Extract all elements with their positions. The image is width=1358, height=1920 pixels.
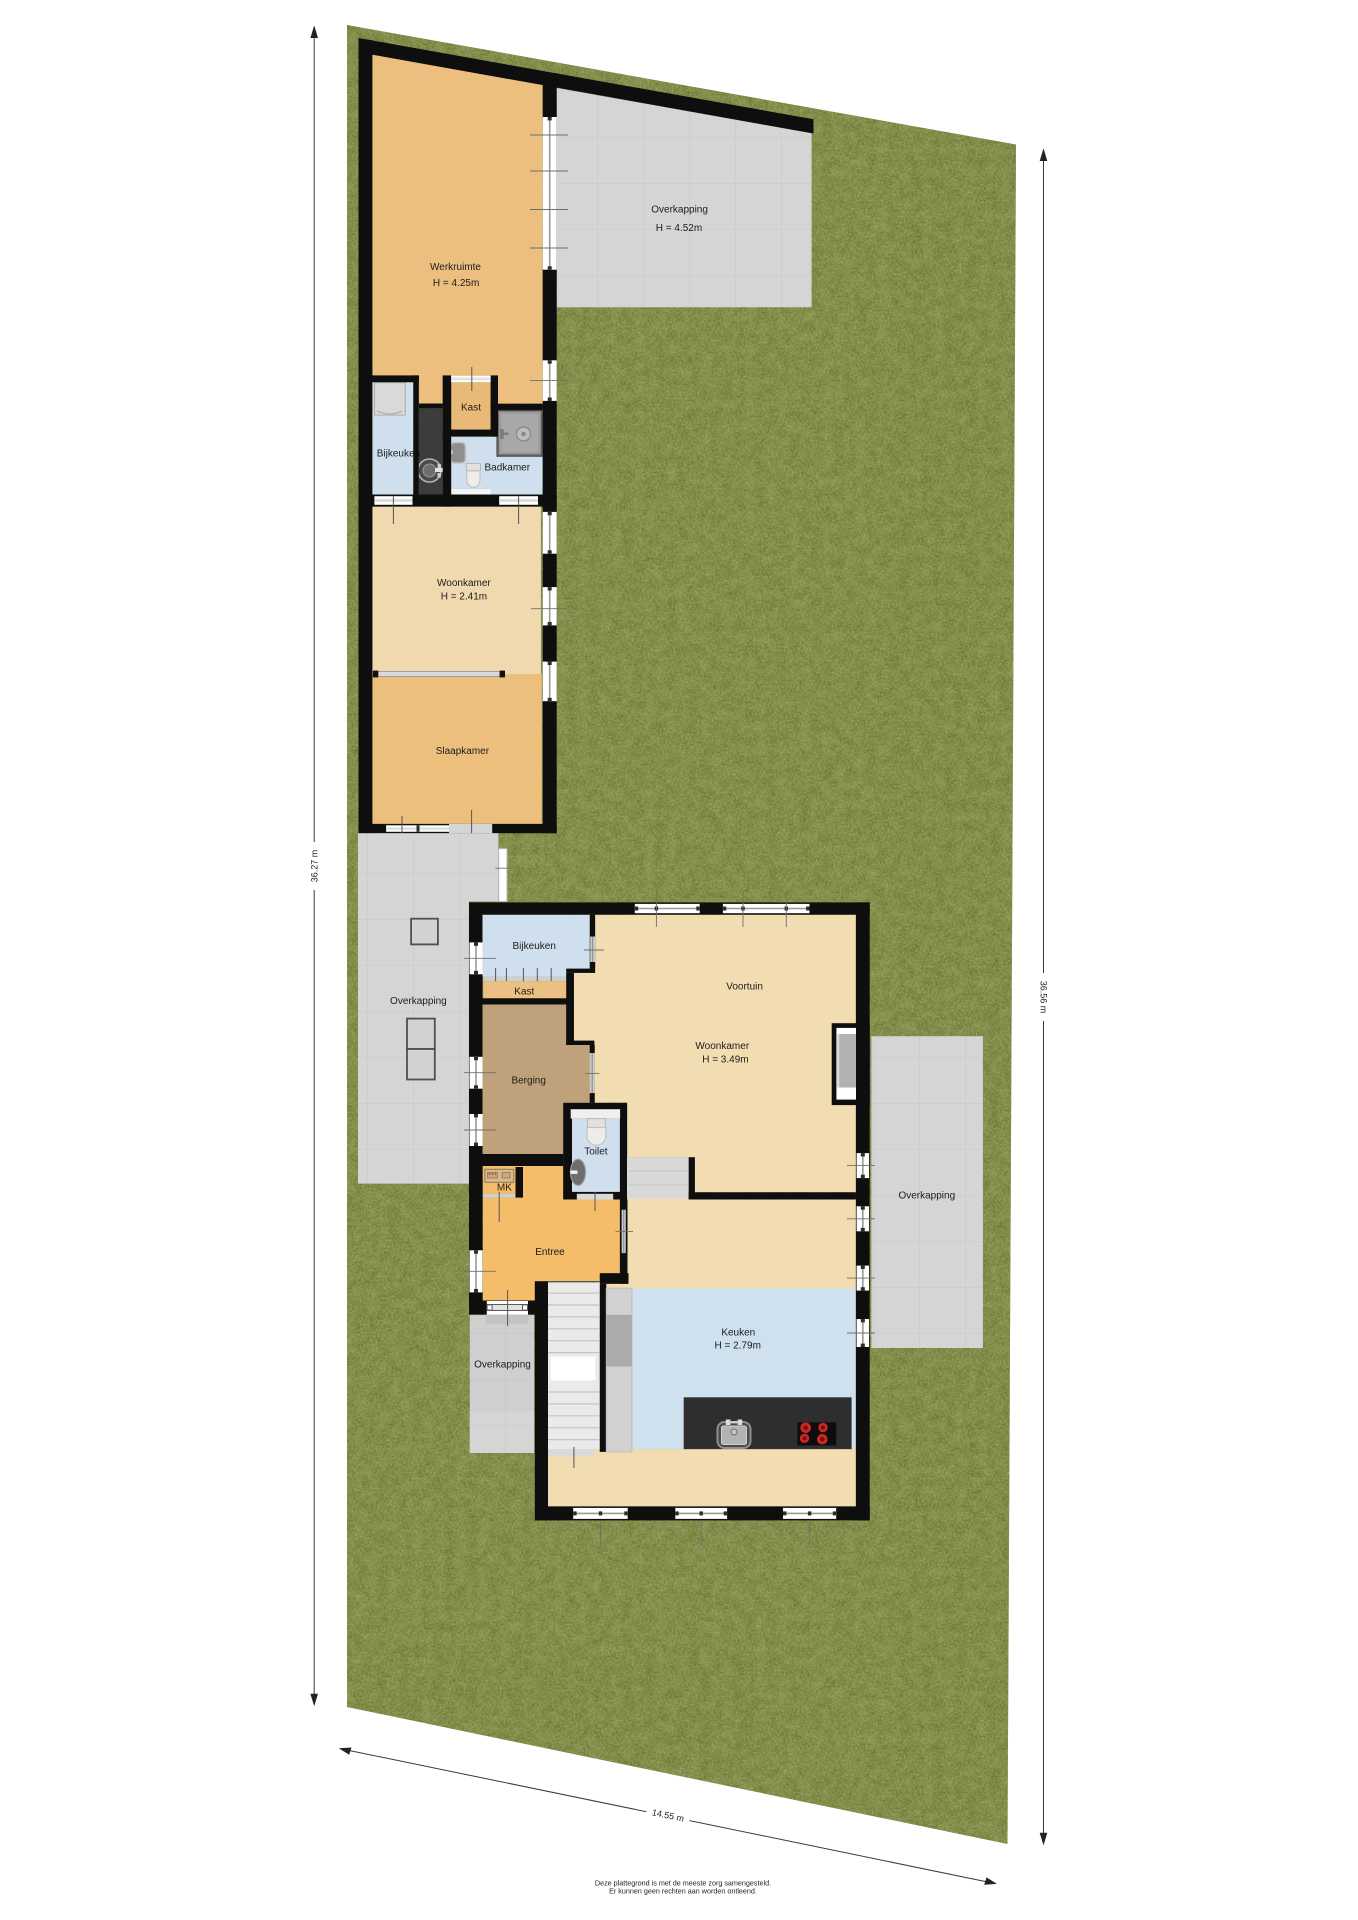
svg-text:Voortuin: Voortuin [726, 982, 763, 993]
svg-text:H = 4.25m: H = 4.25m [433, 278, 479, 289]
svg-text:Entree: Entree [535, 1247, 565, 1258]
svg-text:Woonkamer: Woonkamer [437, 578, 491, 589]
svg-text:Overkapping: Overkapping [898, 1190, 955, 1201]
svg-text:MK: MK [497, 1182, 512, 1193]
svg-text:Werkruimte: Werkruimte [430, 262, 481, 273]
svg-text:36.27 m: 36.27 m [310, 850, 320, 883]
svg-text:Slaapkamer: Slaapkamer [436, 746, 490, 757]
svg-text:Toilet: Toilet [584, 1147, 608, 1158]
svg-text:Overkapping: Overkapping [651, 205, 708, 216]
svg-text:Keuken: Keuken [721, 1327, 755, 1338]
svg-text:36.56 m: 36.56 m [1039, 981, 1049, 1014]
svg-text:Kast: Kast [461, 403, 481, 414]
svg-text:Bijkeuken: Bijkeuken [513, 941, 556, 952]
svg-text:H = 2.79m: H = 2.79m [714, 1341, 760, 1352]
svg-text:H = 3.49m: H = 3.49m [702, 1055, 748, 1066]
svg-text:Woonkamer: Woonkamer [695, 1041, 749, 1052]
svg-text:H = 2.41m: H = 2.41m [441, 592, 487, 603]
svg-text:H = 4.52m: H = 4.52m [656, 223, 702, 234]
svg-text:Er kunnen geen rechten aan wor: Er kunnen geen rechten aan worden ontlee… [609, 1887, 757, 1896]
svg-text:Overkapping: Overkapping [390, 996, 447, 1007]
svg-text:Badkamer: Badkamer [485, 463, 531, 474]
svg-text:Overkapping: Overkapping [474, 1359, 531, 1370]
svg-text:Berging: Berging [511, 1076, 545, 1087]
svg-text:Kast: Kast [514, 986, 534, 997]
